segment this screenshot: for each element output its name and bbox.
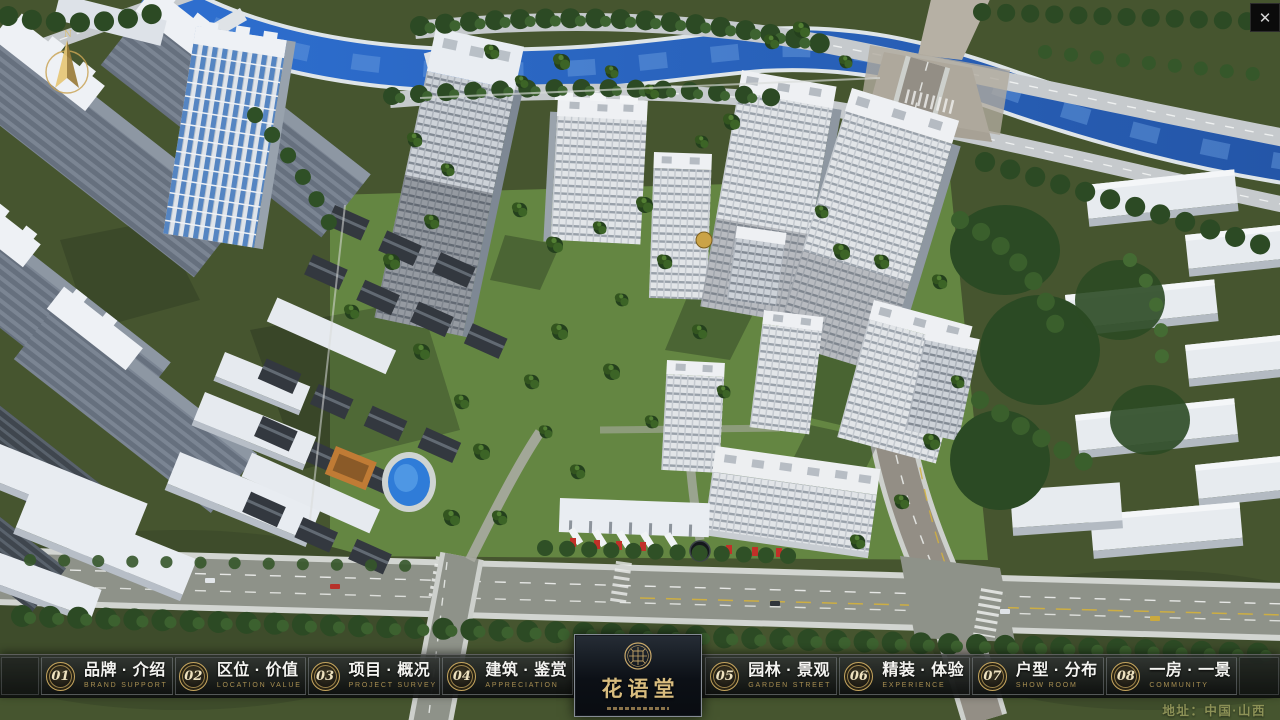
bottom-menu: 01 品牌 · 介绍 BRAND SUPPORT 02 区位 · 价值 LOCA… (0, 654, 1280, 698)
gold-pavilion (696, 232, 712, 248)
menu-item-architecture[interactable]: 04 建筑 · 鉴赏 APPRECIATION (442, 657, 574, 695)
menu-number-badge: 05 (710, 662, 739, 691)
menu-item-project-overview[interactable]: 03 项目 · 概况 PROJECT SURVEY (308, 657, 440, 695)
menu-label-en: PROJECT SURVEY (349, 682, 437, 689)
menu-number-badge: 07 (978, 662, 1007, 691)
menu-label-en: SHOW ROOM (1016, 682, 1098, 689)
menu-label-zh: 户型 · 分布 (1016, 663, 1098, 680)
menu-item-brand-intro[interactable]: 01 品牌 · 介绍 BRAND SUPPORT (41, 657, 173, 695)
compass-icon: N (36, 26, 100, 104)
menu-label-en: APPRECIATION (485, 682, 567, 689)
close-button[interactable]: ✕ (1250, 3, 1280, 32)
compass-north-label: N (64, 30, 72, 40)
menu-label-zh: 品牌 · 介绍 (84, 663, 168, 680)
menu-label-zh: 区位 · 价值 (217, 663, 302, 680)
menu-label-zh: 项目 · 概况 (349, 663, 437, 680)
menu-number-badge: 01 (46, 662, 75, 691)
menu-number-badge: 04 (447, 662, 476, 691)
address-text: 地址：中国·山西 (1162, 700, 1266, 719)
menu-label-en: EXPERIENCE (882, 682, 964, 689)
menu-item-location-value[interactable]: 02 区位 · 价值 LOCATION VALUE (175, 657, 307, 695)
brand-panel-slot: 花语堂 (574, 655, 704, 697)
menu-label-zh: 精装 · 体验 (882, 663, 964, 680)
brand-panel[interactable]: 花语堂 (574, 634, 702, 717)
menu-item-room-view[interactable]: 08 一房 · 一景 COMMUNITY (1106, 657, 1238, 695)
menu-label-zh: 园林 · 景观 (748, 663, 831, 680)
menu-item-interior-experience[interactable]: 06 精装 · 体验 EXPERIENCE (839, 657, 971, 695)
menu-label-en: COMMUNITY (1149, 682, 1231, 689)
menu-number-badge: 02 (179, 662, 208, 691)
brand-seal-icon (623, 641, 653, 671)
menu-item-floorplan-distribution[interactable]: 07 户型 · 分布 SHOW ROOM (972, 657, 1104, 695)
masterplan-render (0, 0, 1280, 720)
menu-label-zh: 建筑 · 鉴赏 (485, 663, 567, 680)
brand-title: 花语堂 (597, 673, 680, 703)
menu-number-badge: 06 (844, 662, 873, 691)
menu-label-en: LOCATION VALUE (217, 682, 302, 689)
menu-label-en: GARDEN STREET (748, 682, 831, 689)
menu-right-spacer (1239, 657, 1279, 695)
menu-left-spacer (1, 657, 39, 695)
menu-label-zh: 一房 · 一景 (1149, 663, 1231, 680)
menu-number-badge: 08 (1111, 662, 1140, 691)
menu-item-landscape[interactable]: 05 园林 · 景观 GARDEN STREET (705, 657, 837, 695)
masterplan-viewport[interactable]: N ✕ 01 品牌 · 介绍 BRAND SUPPORT 02 区位 · 价值 … (0, 0, 1280, 720)
menu-label-en: BRAND SUPPORT (84, 682, 168, 689)
brand-subtitle-line (607, 707, 669, 710)
menu-number-badge: 03 (311, 662, 340, 691)
